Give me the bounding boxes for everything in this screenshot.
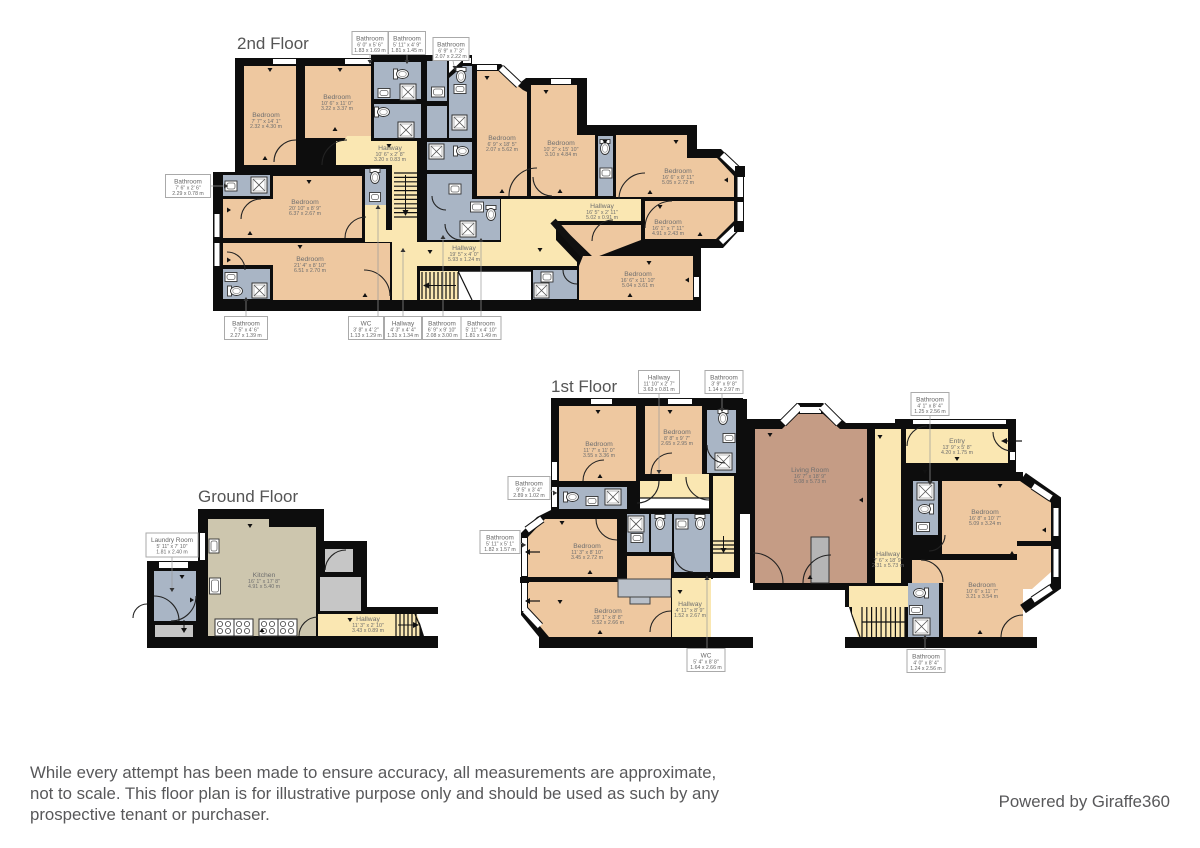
svg-text:1.14 x 2.97 m: 1.14 x 2.97 m	[708, 387, 739, 393]
svg-text:5.52 x 2.66 m: 5.52 x 2.66 m	[592, 620, 625, 626]
svg-text:6.37 x 2.67 m: 6.37 x 2.67 m	[289, 211, 322, 217]
svg-text:5.93 x 1.24 m: 5.93 x 1.24 m	[448, 257, 481, 263]
svg-text:2.65 x 2.95 m: 2.65 x 2.95 m	[661, 441, 694, 447]
svg-text:1.81 x 1.45 m: 1.81 x 1.45 m	[391, 48, 422, 54]
svg-text:2.08 x 3.00 m: 2.08 x 3.00 m	[426, 333, 457, 339]
svg-text:3.22 x 3.37 m: 3.22 x 3.37 m	[321, 106, 354, 112]
svg-text:3.10 x 4.84 m: 3.10 x 4.84 m	[545, 152, 578, 158]
svg-text:5.04 x 3.61 m: 5.04 x 3.61 m	[622, 283, 655, 289]
svg-text:2.32 x 4.30 m: 2.32 x 4.30 m	[250, 124, 283, 130]
svg-text:5.08 x 5.73 m: 5.08 x 5.73 m	[794, 479, 827, 485]
svg-text:2.07 x 2.22 m: 2.07 x 2.22 m	[435, 54, 466, 60]
svg-text:6.51 x 2.70 m: 6.51 x 2.70 m	[294, 268, 327, 274]
svg-text:3.20 x 0.83 m: 3.20 x 0.83 m	[374, 157, 407, 163]
svg-text:While every attempt has been m: While every attempt has been made to ens…	[30, 763, 716, 782]
svg-text:3.43 x 0.89 m: 3.43 x 0.89 m	[352, 628, 385, 634]
svg-text:4.91 x 5.40 m: 4.91 x 5.40 m	[248, 584, 281, 590]
svg-text:1.81 x 2.40 m: 1.81 x 2.40 m	[156, 549, 187, 555]
svg-text:1st Floor: 1st Floor	[551, 377, 617, 396]
svg-text:1.52 x 2.67 m: 1.52 x 2.67 m	[674, 613, 707, 619]
svg-text:prospective tenant or purchase: prospective tenant or purchaser.	[30, 805, 270, 824]
svg-text:3.45 x 2.72 m: 3.45 x 2.72 m	[571, 555, 604, 561]
svg-text:5.09 x 3.24 m: 5.09 x 3.24 m	[969, 521, 1002, 527]
svg-text:1.31 x 1.34 m: 1.31 x 1.34 m	[387, 333, 418, 339]
svg-text:2.31 x 5.73 m: 2.31 x 5.73 m	[872, 563, 905, 569]
svg-text:2.27 x 1.39 m: 2.27 x 1.39 m	[230, 333, 261, 339]
svg-text:3.63 x 0.81 m: 3.63 x 0.81 m	[643, 387, 674, 393]
svg-text:1.81 x 1.49 m: 1.81 x 1.49 m	[465, 333, 496, 339]
svg-text:2.29 x 0.78 m: 2.29 x 0.78 m	[172, 191, 203, 197]
svg-text:4.20 x 1.75 m: 4.20 x 1.75 m	[941, 450, 974, 456]
svg-text:2.89 x 1.02 m: 2.89 x 1.02 m	[513, 493, 544, 499]
svg-text:1.82 x 1.57 m: 1.82 x 1.57 m	[484, 547, 515, 553]
svg-text:not to scale. This floor plan: not to scale. This floor plan is for ill…	[30, 784, 720, 803]
svg-text:5.02 x 0.91 m: 5.02 x 0.91 m	[586, 215, 619, 221]
svg-text:5.05 x 2.72 m: 5.05 x 2.72 m	[662, 180, 695, 186]
svg-text:2.07 x 5.62 m: 2.07 x 5.62 m	[486, 147, 519, 153]
svg-text:3.21 x 3.54 m: 3.21 x 3.54 m	[966, 594, 999, 600]
svg-text:Powered by Giraffe360: Powered by Giraffe360	[999, 792, 1170, 811]
svg-text:1.83 x 1.69 m: 1.83 x 1.69 m	[354, 48, 385, 54]
svg-text:2nd Floor: 2nd Floor	[237, 34, 309, 53]
svg-text:Ground Floor: Ground Floor	[198, 487, 298, 506]
svg-text:1.64 x 2.66 m: 1.64 x 2.66 m	[690, 665, 721, 671]
svg-text:3.55 x 3.36 m: 3.55 x 3.36 m	[583, 453, 616, 459]
svg-text:1.25 x 2.56 m: 1.25 x 2.56 m	[914, 409, 945, 415]
svg-text:1.24 x 2.56 m: 1.24 x 2.56 m	[910, 666, 941, 672]
svg-text:1.13 x 1.29 m: 1.13 x 1.29 m	[350, 333, 381, 339]
svg-text:4.91 x 2.43 m: 4.91 x 2.43 m	[652, 231, 685, 237]
